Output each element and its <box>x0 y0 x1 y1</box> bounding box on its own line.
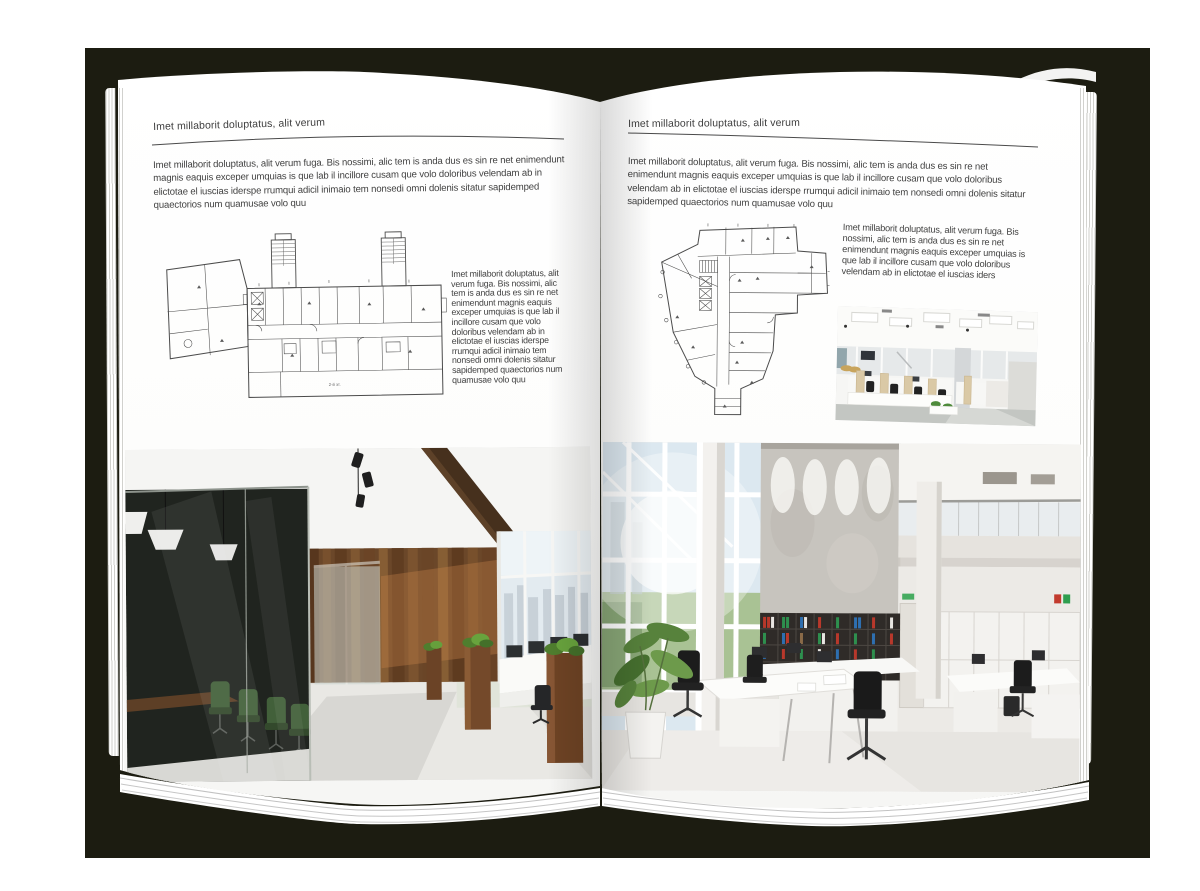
stair-hatching <box>271 238 405 266</box>
floorplan-right <box>647 220 830 417</box>
office-photo-right <box>601 442 1081 792</box>
floorplan-left: 2-й эт. <box>158 223 451 416</box>
office-photo-right-art <box>601 442 1081 792</box>
intro-paragraph: Imet millaborit doluptatus, alit verum f… <box>627 155 1038 215</box>
right-page: Imet millaborit doluptatus, alit verum I… <box>600 70 1089 818</box>
header-rule <box>151 131 567 149</box>
intro-paragraph: Imet millaborit doluptatus, alit verum f… <box>153 153 566 212</box>
office-photo-small <box>835 306 1037 426</box>
glass-meeting-room <box>125 487 311 782</box>
plan-columns <box>658 270 706 384</box>
left-page: Imet millaborit doluptatus, alit verum I… <box>114 70 600 806</box>
right-page-sheet-edges <box>1079 88 1087 794</box>
concrete-wall <box>760 443 901 614</box>
magazine-spread-mockup: Imet millaborit doluptatus, alit verum I… <box>0 0 1200 891</box>
office-photo-left <box>125 447 592 782</box>
floorplan-left-label: 2-й эт. <box>329 382 341 387</box>
plan-furniture-marks <box>197 281 426 358</box>
tv-screen <box>861 351 875 360</box>
glass-partition <box>314 562 381 684</box>
first-aid-sign <box>1054 594 1061 603</box>
side-paragraph: Imet millaborit doluptatus, alit verum f… <box>841 222 1026 282</box>
office-photo-left-art <box>125 447 592 782</box>
side-paragraph: Imet millaborit doluptatus, alit verum f… <box>451 269 566 385</box>
office-photo-small-art <box>835 306 1037 426</box>
exit-sign <box>1063 594 1070 603</box>
plan-furniture-marks <box>675 235 814 408</box>
page-header: Imet millaborit doluptatus, alit verum <box>628 117 800 130</box>
header-rule <box>627 130 1041 152</box>
